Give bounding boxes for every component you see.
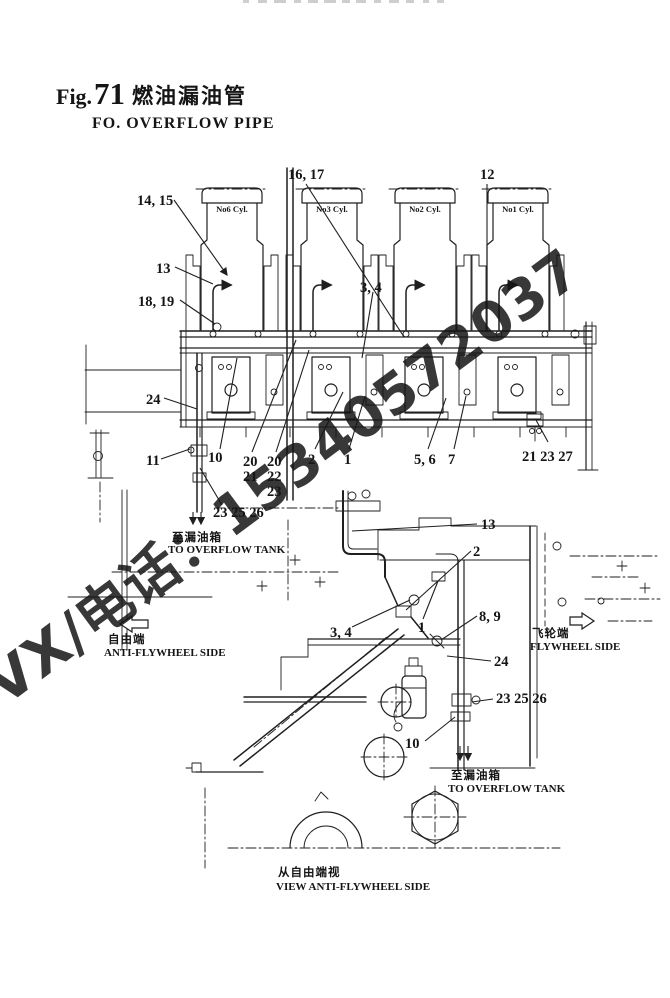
to-overflow-tank-cn: 至漏油箱 bbox=[451, 768, 501, 782]
right-direction-arrow-icon bbox=[570, 613, 594, 629]
cylinder-label: No6 Cyl. bbox=[216, 204, 248, 214]
callout-16-17: 16, 17 bbox=[288, 167, 324, 183]
manual-page: Fig. 71 燃油漏油管 FO. OVERFLOW PIPE No6 Cyl. bbox=[0, 0, 670, 998]
fig-label: Fig. bbox=[56, 84, 92, 109]
callout-5-6: 5, 6 bbox=[414, 452, 436, 468]
end-view-labels: 至漏油箱 TO OVERFLOW TANK 从自由端视 VIEW ANTI-FL… bbox=[276, 768, 566, 893]
watermark: VX/电话：15340572037 bbox=[0, 237, 593, 718]
callout-24: 24 bbox=[494, 654, 509, 670]
figure-canvas: Fig. 71 燃油漏油管 FO. OVERFLOW PIPE No6 Cyl. bbox=[0, 0, 670, 998]
callout-8-9: 8, 9 bbox=[479, 609, 501, 625]
callout-18-19: 18, 19 bbox=[138, 294, 174, 310]
callout-10: 10 bbox=[208, 450, 223, 466]
callout-3-4: 3, 4 bbox=[360, 280, 382, 296]
callout-21-23-27: 21 23 27 bbox=[522, 449, 573, 465]
flywheel-side-structure bbox=[545, 533, 660, 626]
fig-number: 71 bbox=[94, 76, 125, 111]
callout-1: 1 bbox=[418, 620, 425, 636]
title-english: FO. OVERFLOW PIPE bbox=[92, 115, 275, 132]
cylinder-label: No3 Cyl. bbox=[316, 204, 348, 214]
callout-13: 13 bbox=[156, 261, 171, 277]
callout-7: 7 bbox=[448, 452, 455, 468]
cylinder-label: No2 Cyl. bbox=[409, 204, 441, 214]
title-chinese: 燃油漏油管 bbox=[132, 84, 247, 108]
view-caption-en: VIEW ANTI-FLYWHEEL SIDE bbox=[276, 881, 430, 893]
callout-14-15: 14, 15 bbox=[137, 193, 173, 209]
callout-23-25-26: 23 25 26 bbox=[496, 691, 547, 707]
flywheel-cn: 飞轮端 bbox=[532, 626, 570, 640]
end-view-callouts: 13 2 3, 4 1 8, 9 24 23 25 26 10 bbox=[330, 517, 547, 752]
callout-11: 11 bbox=[146, 453, 160, 469]
callout-13: 13 bbox=[481, 517, 496, 533]
cropped-header-marks bbox=[243, 0, 444, 3]
to-overflow-tank-en: TO OVERFLOW TANK bbox=[448, 783, 566, 795]
callout-2: 2 bbox=[473, 544, 480, 560]
cylinder-label: No1 Cyl. bbox=[502, 204, 534, 214]
callout-3-4: 3, 4 bbox=[330, 625, 352, 641]
flywheel-en: FLYWHEEL SIDE bbox=[530, 641, 620, 653]
cylinder-head-no6: No6 Cyl. bbox=[186, 188, 283, 419]
callout-10: 10 bbox=[405, 736, 420, 752]
callout-24: 24 bbox=[146, 392, 161, 408]
callout-12: 12 bbox=[480, 167, 495, 183]
figure-title: Fig. 71 燃油漏油管 FO. OVERFLOW PIPE bbox=[56, 76, 275, 132]
view-caption-cn: 从自由端视 bbox=[278, 865, 341, 879]
anti-flywheel-en: ANTI-FLYWHEEL SIDE bbox=[104, 647, 226, 659]
